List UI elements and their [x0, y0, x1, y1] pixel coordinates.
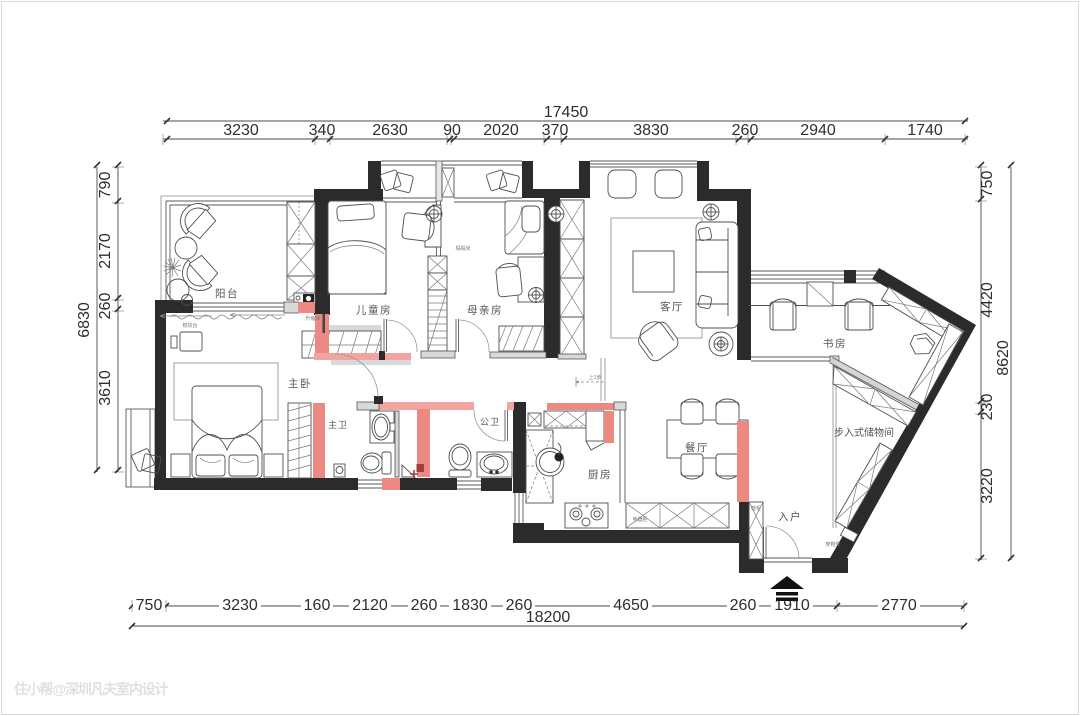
svg-text:6830: 6830 — [76, 302, 93, 338]
svg-text:公卫: 公卫 — [480, 417, 500, 427]
svg-text:750: 750 — [136, 597, 163, 614]
svg-text:260: 260 — [411, 597, 438, 614]
svg-text:260: 260 — [97, 293, 114, 320]
svg-text:160: 160 — [304, 597, 331, 614]
svg-text:3230: 3230 — [223, 122, 259, 139]
svg-text:主卧: 主卧 — [288, 377, 312, 390]
svg-text:餐厅: 餐厅 — [685, 441, 709, 454]
svg-text:书房: 书房 — [823, 337, 847, 350]
svg-text:2120: 2120 — [352, 597, 388, 614]
svg-text:儿童房: 儿童房 — [356, 304, 392, 317]
svg-text:阳台: 阳台 — [215, 287, 239, 300]
svg-text:鞋柜: 鞋柜 — [751, 505, 761, 512]
svg-text:电器柜: 电器柜 — [632, 516, 647, 523]
svg-text:230: 230 — [979, 394, 996, 421]
svg-text:穿鞋凳: 穿鞋凳 — [825, 541, 840, 548]
svg-text:梳妆台: 梳妆台 — [182, 322, 197, 329]
svg-text:客厅: 客厅 — [660, 300, 684, 313]
svg-text:8620: 8620 — [995, 340, 1012, 376]
svg-text:3830: 3830 — [633, 122, 669, 139]
svg-text:1830: 1830 — [452, 597, 488, 614]
svg-text:厨房: 厨房 — [588, 468, 612, 481]
svg-text:2630: 2630 — [372, 122, 408, 139]
svg-text:3230: 3230 — [222, 597, 258, 614]
svg-text:750: 750 — [979, 171, 996, 198]
svg-text:2020: 2020 — [483, 122, 519, 139]
svg-text:住小帮@深圳凡夫室内设计: 住小帮@深圳凡夫室内设计 — [14, 681, 168, 697]
svg-text:4420: 4420 — [979, 282, 996, 318]
svg-text:340: 340 — [309, 122, 336, 139]
svg-text:2770: 2770 — [881, 597, 917, 614]
svg-text:母亲房: 母亲房 — [467, 304, 503, 317]
svg-text:3220: 3220 — [979, 468, 996, 504]
svg-text:260: 260 — [730, 597, 757, 614]
svg-text:入户: 入户 — [778, 510, 802, 523]
svg-text:升缩床: 升缩床 — [305, 315, 320, 322]
svg-text:17450: 17450 — [544, 104, 589, 121]
svg-text:790: 790 — [97, 172, 114, 199]
svg-text:主卫: 主卫 — [328, 419, 348, 430]
svg-text:18200: 18200 — [526, 609, 571, 626]
svg-text:90: 90 — [443, 122, 461, 139]
svg-text:1740: 1740 — [907, 122, 943, 139]
svg-text:4650: 4650 — [613, 597, 649, 614]
svg-text:上1步: 上1步 — [589, 374, 602, 381]
svg-text:260: 260 — [732, 122, 759, 139]
svg-text:370: 370 — [542, 122, 569, 139]
svg-text:步入式储物间: 步入式储物间 — [834, 426, 894, 439]
svg-text:榻榻米: 榻榻米 — [455, 245, 470, 252]
svg-text:2940: 2940 — [800, 122, 836, 139]
svg-text:3610: 3610 — [97, 370, 114, 406]
svg-text:2170: 2170 — [97, 233, 114, 269]
